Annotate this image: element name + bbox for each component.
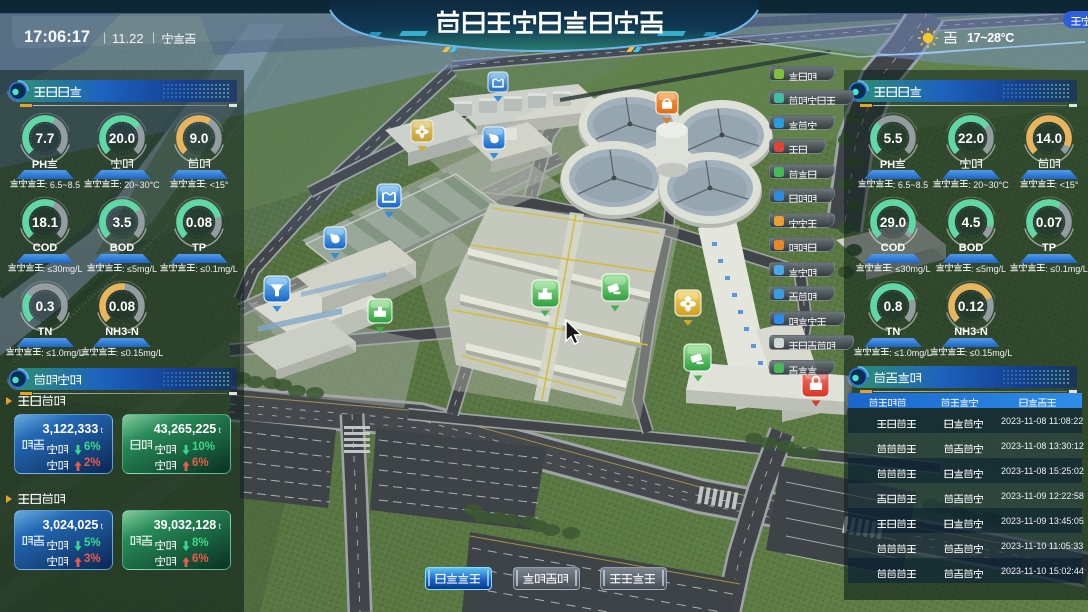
- svg-text:7.7: 7.7: [36, 131, 55, 146]
- svg-text:20.0: 20.0: [109, 131, 135, 146]
- svg-text:3.5: 3.5: [113, 215, 132, 230]
- svg-text:22.0: 22.0: [958, 131, 984, 146]
- svg-text:18.1: 18.1: [32, 215, 59, 230]
- svg-text:0.08: 0.08: [186, 215, 213, 230]
- svg-text:4.5: 4.5: [962, 215, 981, 230]
- svg-text:29.0: 29.0: [880, 215, 906, 230]
- svg-text:5.5: 5.5: [884, 131, 903, 146]
- svg-text:14.0: 14.0: [1036, 131, 1062, 146]
- svg-text:0.8: 0.8: [884, 299, 903, 314]
- svg-text:0.3: 0.3: [36, 299, 55, 314]
- svg-text:0.07: 0.07: [1036, 215, 1062, 230]
- svg-text:9.0: 9.0: [190, 131, 209, 146]
- svg-text:0.12: 0.12: [958, 299, 984, 314]
- svg-text:0.08: 0.08: [109, 299, 136, 314]
